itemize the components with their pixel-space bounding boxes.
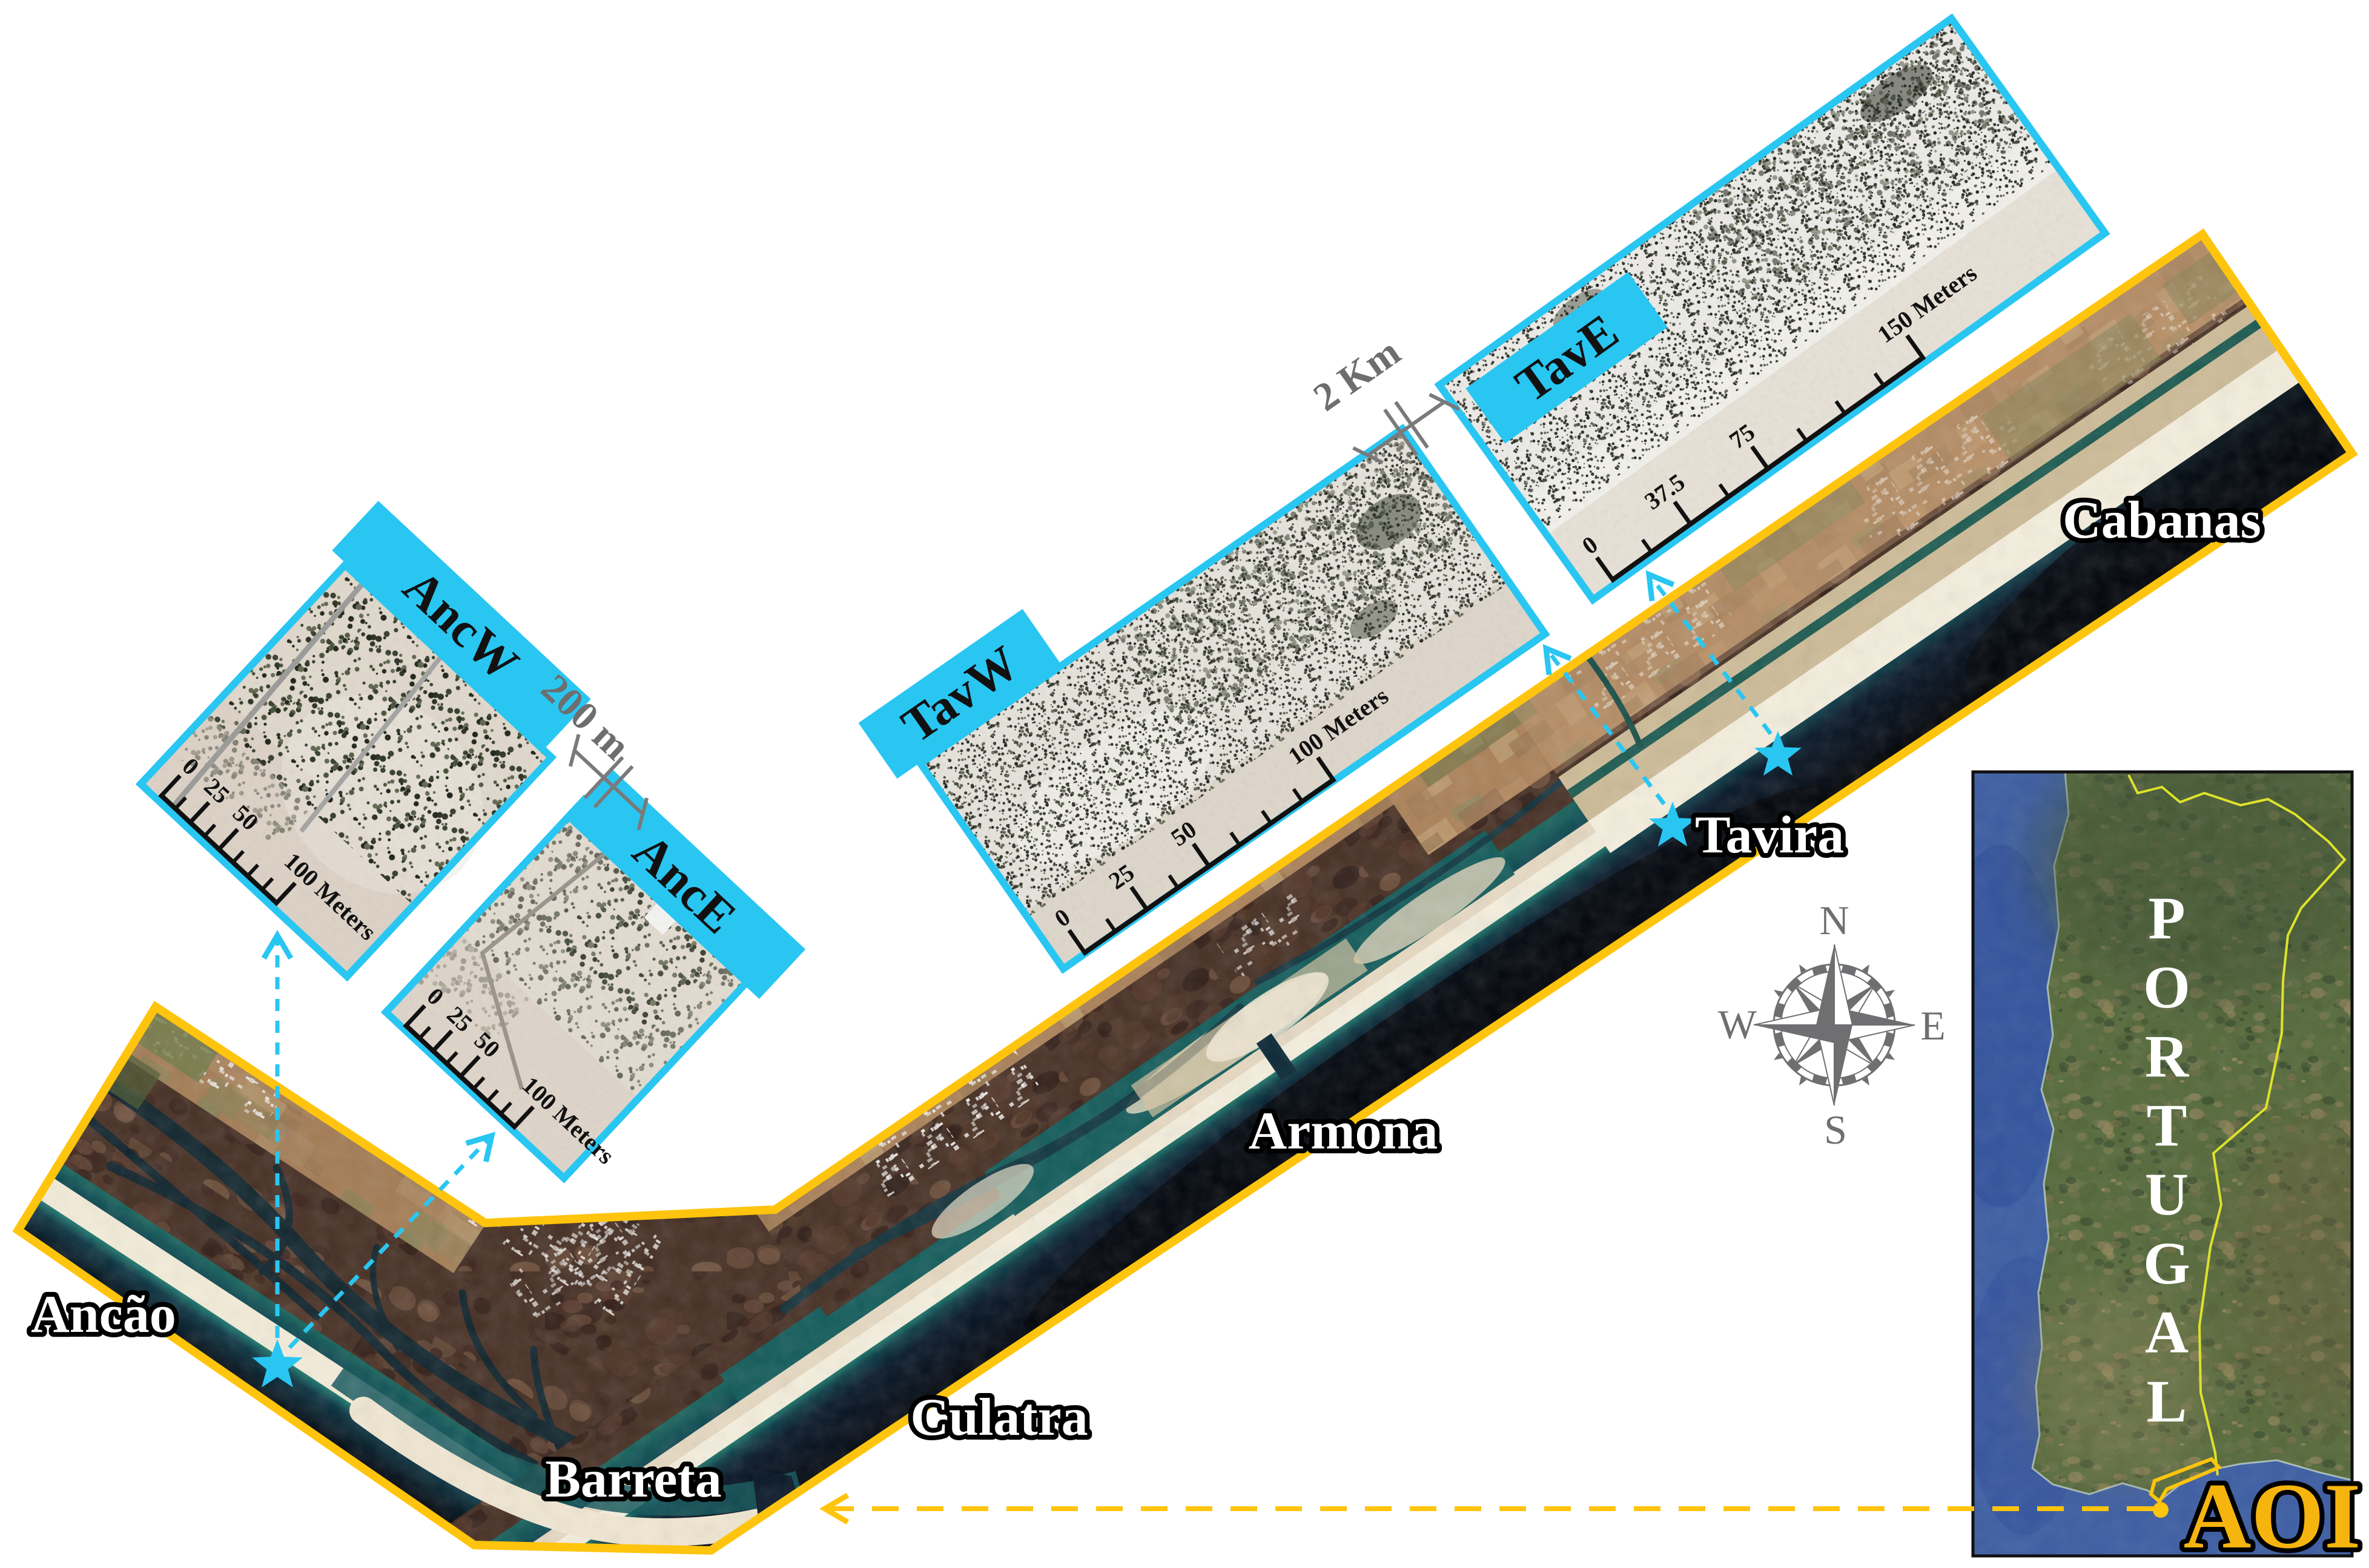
svg-text:Barreta: Barreta — [545, 1450, 722, 1509]
svg-text:Tavira: Tavira — [1695, 806, 1844, 865]
svg-text:E: E — [1920, 1003, 1946, 1049]
svg-text:AOI: AOI — [2184, 1464, 2361, 1565]
svg-text:G: G — [2143, 1230, 2190, 1297]
svg-text:N: N — [1819, 897, 1849, 943]
svg-text:P: P — [2148, 884, 2185, 952]
svg-text:Ancão: Ancão — [31, 1285, 176, 1344]
svg-text:Armona: Armona — [1249, 1102, 1438, 1161]
svg-text:S: S — [1824, 1107, 1847, 1153]
svg-text:2 Km: 2 Km — [1306, 329, 1409, 420]
svg-text:U: U — [2145, 1161, 2189, 1228]
svg-text:Cabanas: Cabanas — [2063, 491, 2261, 550]
svg-text:T: T — [2147, 1092, 2187, 1159]
svg-text:Culatra: Culatra — [910, 1388, 1088, 1447]
svg-text:W: W — [1718, 1001, 1757, 1047]
svg-text:A: A — [2145, 1299, 2189, 1366]
svg-text:R: R — [2145, 1023, 2190, 1090]
svg-text:L: L — [2147, 1368, 2187, 1435]
svg-text:O: O — [2143, 954, 2190, 1021]
